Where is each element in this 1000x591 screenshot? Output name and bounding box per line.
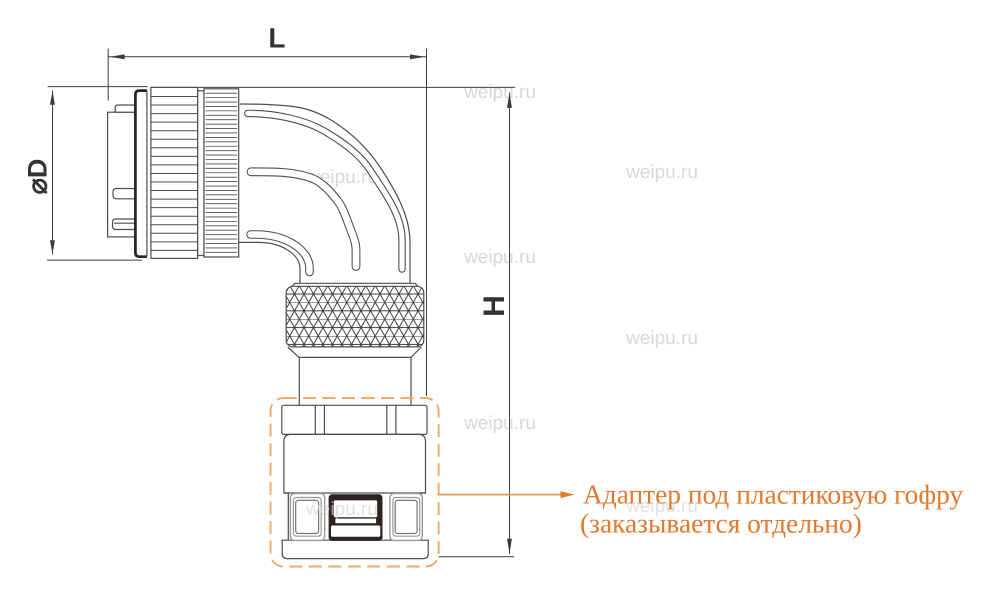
svg-text:weipu.ru: weipu.ru: [625, 496, 698, 517]
svg-text:weipu.ru: weipu.ru: [625, 328, 698, 349]
svg-text:weipu.ru: weipu.ru: [305, 499, 378, 520]
svg-text:weipu.ru: weipu.ru: [463, 247, 536, 268]
svg-text:L: L: [268, 22, 285, 53]
svg-text:(заказывается отдельно): (заказывается отдельно): [580, 509, 862, 539]
svg-text:⌀D: ⌀D: [23, 159, 53, 195]
svg-text:H: H: [478, 295, 511, 317]
svg-text:weipu.ru: weipu.ru: [463, 413, 536, 434]
svg-text:weipu.ru: weipu.ru: [625, 162, 698, 183]
svg-text:weipu.ru: weipu.ru: [463, 82, 536, 103]
